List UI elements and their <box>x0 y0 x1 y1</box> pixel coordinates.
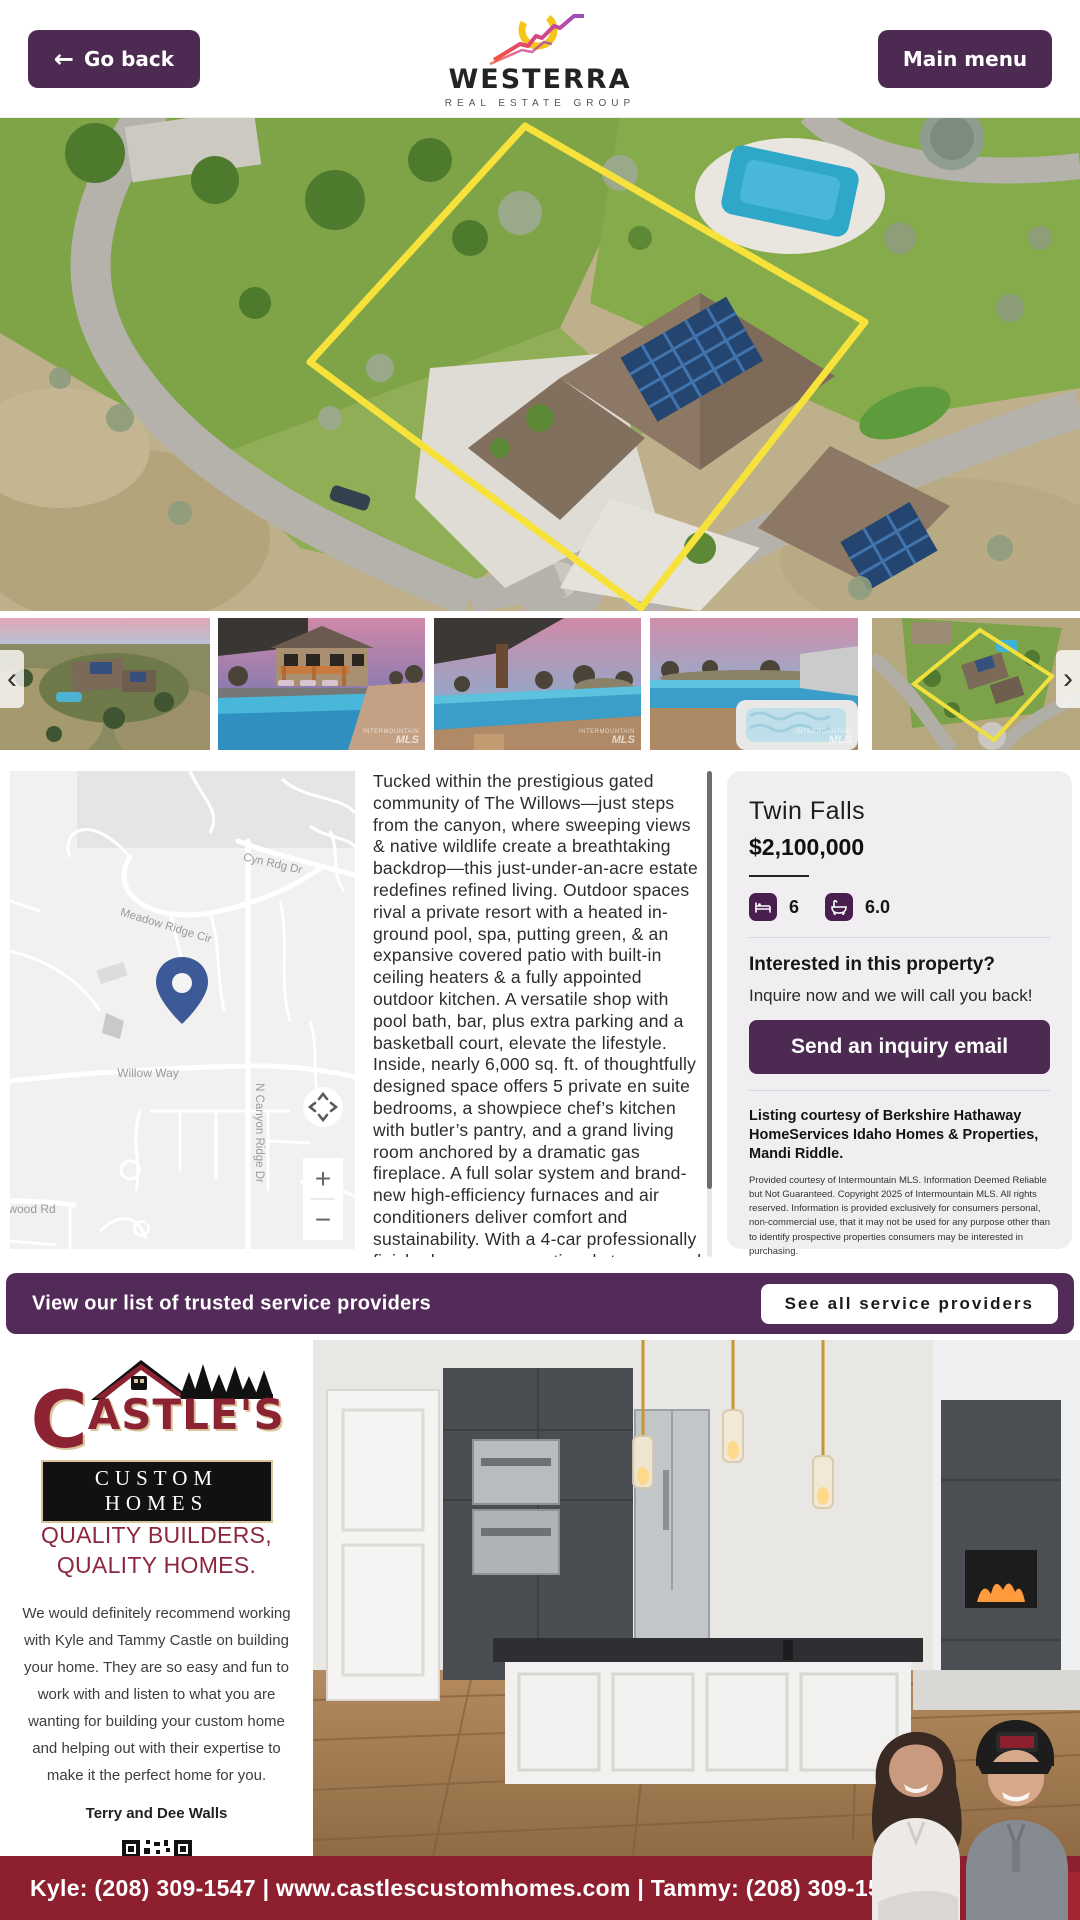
gallery-prev-button[interactable]: ‹ <box>0 650 24 708</box>
mls-watermark: INTERMOUNTAIN MLS <box>579 729 635 746</box>
property-city: Twin Falls <box>749 797 1050 826</box>
see-all-providers-button[interactable]: See all service providers <box>761 1284 1058 1324</box>
map-canvas[interactable]: Cyn Rdg Dr Meadow Ridge Cir Willow Way N… <box>10 771 355 1249</box>
hero-aerial-photo[interactable] <box>0 118 1080 611</box>
brand-initial: C <box>31 1376 88 1466</box>
chevron-right-icon: › <box>1063 662 1073 696</box>
thumbnail-pool-patio[interactable]: INTERMOUNTAIN MLS <box>434 618 641 750</box>
castles-custom-homes-logo: CASTLE'S CUSTOM HOMES <box>31 1362 283 1502</box>
beds-baths-row: 6 6.0 <box>749 893 1050 921</box>
thumbnail-pool-house[interactable]: INTERMOUNTAIN MLS <box>218 618 425 750</box>
property-price: $2,100,000 <box>749 834 1050 861</box>
location-map[interactable]: Cyn Rdg Dr Meadow Ridge Cir Willow Way N… <box>10 771 355 1249</box>
sponsor-tagline: QUALITY BUILDERS, QUALITY HOMES. <box>0 1520 313 1580</box>
interest-heading: Interested in this property? <box>749 954 1050 976</box>
property-info-card: Twin Falls $2,100,000 6 6.0 Interested i… <box>727 771 1072 1249</box>
sun-mountain-icon <box>480 8 600 66</box>
thumbnail-aerial-boundary[interactable] <box>872 618 1080 750</box>
brand-tagline: REAL ESTATE GROUP <box>420 98 660 109</box>
people-illustration <box>858 1692 1080 1920</box>
scrollbar-thumb[interactable] <box>707 771 712 1189</box>
map-zoom-out-button[interactable]: − <box>315 1204 331 1235</box>
thumbnail-hot-tub[interactable]: INTERMOUNTAIN MLS <box>650 618 858 750</box>
chevron-left-icon: ‹ <box>7 662 17 696</box>
brand-name: WESTERRA <box>420 66 660 93</box>
service-providers-banner: View our list of trusted service provide… <box>6 1273 1074 1334</box>
sponsor-contact-text: Kyle: (208) 309-1547 | www.castlescustom… <box>30 1856 907 1920</box>
map-zoom-control: + − <box>303 1158 343 1240</box>
map-zoom-in-button[interactable]: + <box>315 1163 331 1194</box>
map-pan-control[interactable] <box>303 1087 343 1127</box>
svg-text:+: + <box>315 1163 331 1194</box>
go-back-button[interactable]: ← Go back <box>28 30 200 88</box>
send-inquiry-button[interactable]: Send an inquiry email <box>749 1020 1050 1074</box>
aerial-photo-illustration <box>0 118 1080 611</box>
brand-wordmark: CASTLE'S <box>31 1390 283 1452</box>
thumb-5-img <box>872 618 1080 750</box>
brand-rest: ASTLE'S <box>88 1390 285 1439</box>
sponsor-ad-left-column: CASTLE'S CUSTOM HOMES QUALITY BUILDERS, … <box>0 1340 313 1856</box>
street-label-wood-rd: wood Rd <box>10 1202 56 1216</box>
divider <box>749 1090 1050 1091</box>
brand-bar: CUSTOM HOMES <box>41 1460 273 1523</box>
thumbnail-aerial-dusk[interactable] <box>0 618 210 750</box>
mls-disclaimer: Provided courtesy of Intermountain MLS. … <box>749 1174 1050 1260</box>
gallery-next-button[interactable]: › <box>1056 650 1080 708</box>
interest-subtext: Inquire now and we will call you back! <box>749 986 1050 1006</box>
go-back-label: Go back <box>84 47 174 71</box>
bath-icon <box>825 893 853 921</box>
street-label-n-canyon-ridge: N Canyon Ridge Dr <box>253 1083 265 1183</box>
providers-banner-text: View our list of trusted service provide… <box>32 1292 431 1315</box>
property-description[interactable]: Tucked within the prestigious gated comm… <box>373 771 704 1257</box>
castle-owners-photo <box>858 1692 1080 1920</box>
thumb-1-img <box>0 618 210 750</box>
listing-courtesy: Listing courtesy of Berkshire Hathaway H… <box>749 1107 1050 1164</box>
thumbnail-strip: INTERMOUNTAIN MLS INTERMOUNTAIN MLS <box>0 618 1080 750</box>
listing-page: ← Go back WESTERRA REAL ESTATE GROUP Mai… <box>0 0 1080 1920</box>
mls-watermark: INTERMOUNTAIN MLS <box>363 729 419 746</box>
street-label-willow-way: Willow Way <box>117 1066 179 1080</box>
main-menu-button[interactable]: Main menu <box>878 30 1052 88</box>
divider <box>749 937 1050 938</box>
testimonial-author: Terry and Dee Walls <box>0 1805 313 1822</box>
mls-watermark: INTERMOUNTAIN MLS <box>796 729 852 746</box>
bed-icon <box>749 893 777 921</box>
svg-text:−: − <box>315 1204 331 1235</box>
back-arrow-icon: ← <box>54 47 74 71</box>
beds-count: 6 <box>789 897 799 918</box>
description-scrollbar <box>707 771 712 1257</box>
westerra-logo: WESTERRA REAL ESTATE GROUP <box>420 8 660 109</box>
sponsor-testimonial: We would definitely recommend working wi… <box>14 1600 299 1789</box>
header: ← Go back WESTERRA REAL ESTATE GROUP Mai… <box>0 0 1080 118</box>
baths-count: 6.0 <box>865 897 890 918</box>
price-underline <box>749 875 809 877</box>
main-menu-label: Main menu <box>903 47 1027 71</box>
